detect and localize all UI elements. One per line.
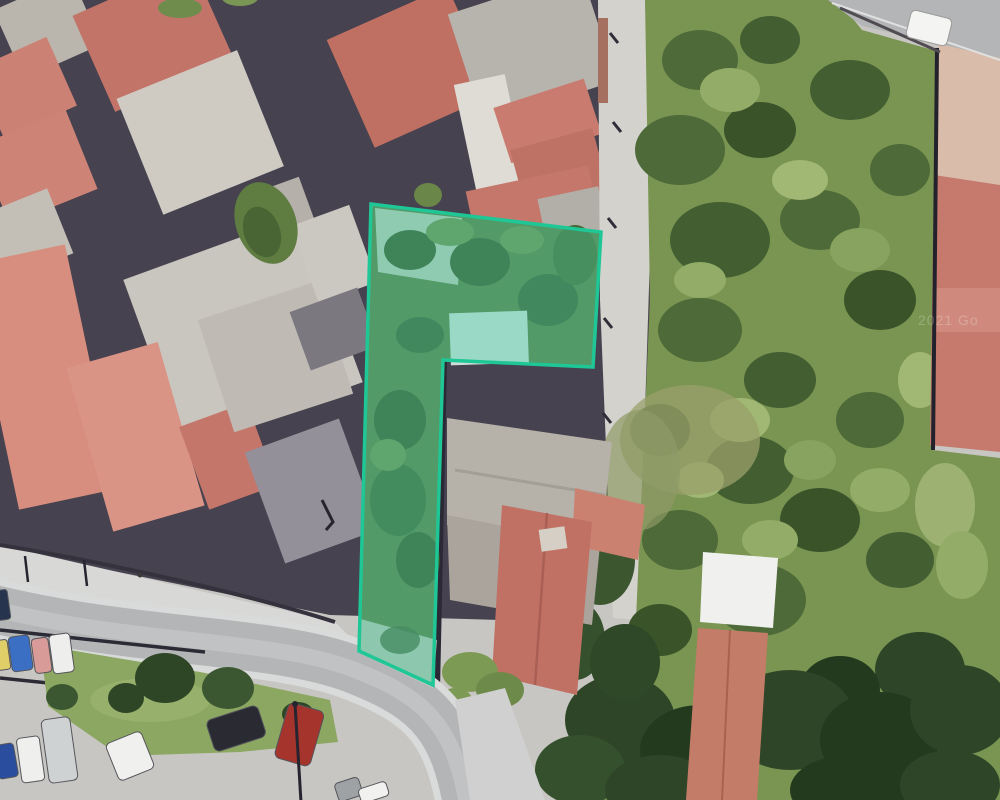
car xyxy=(8,635,34,673)
right-edge-buildings xyxy=(930,42,1000,452)
satellite-map-view: 2021 Go xyxy=(0,0,1000,800)
imagery-watermark: 2021 Go xyxy=(918,312,979,328)
white-shed-roof xyxy=(700,552,778,628)
